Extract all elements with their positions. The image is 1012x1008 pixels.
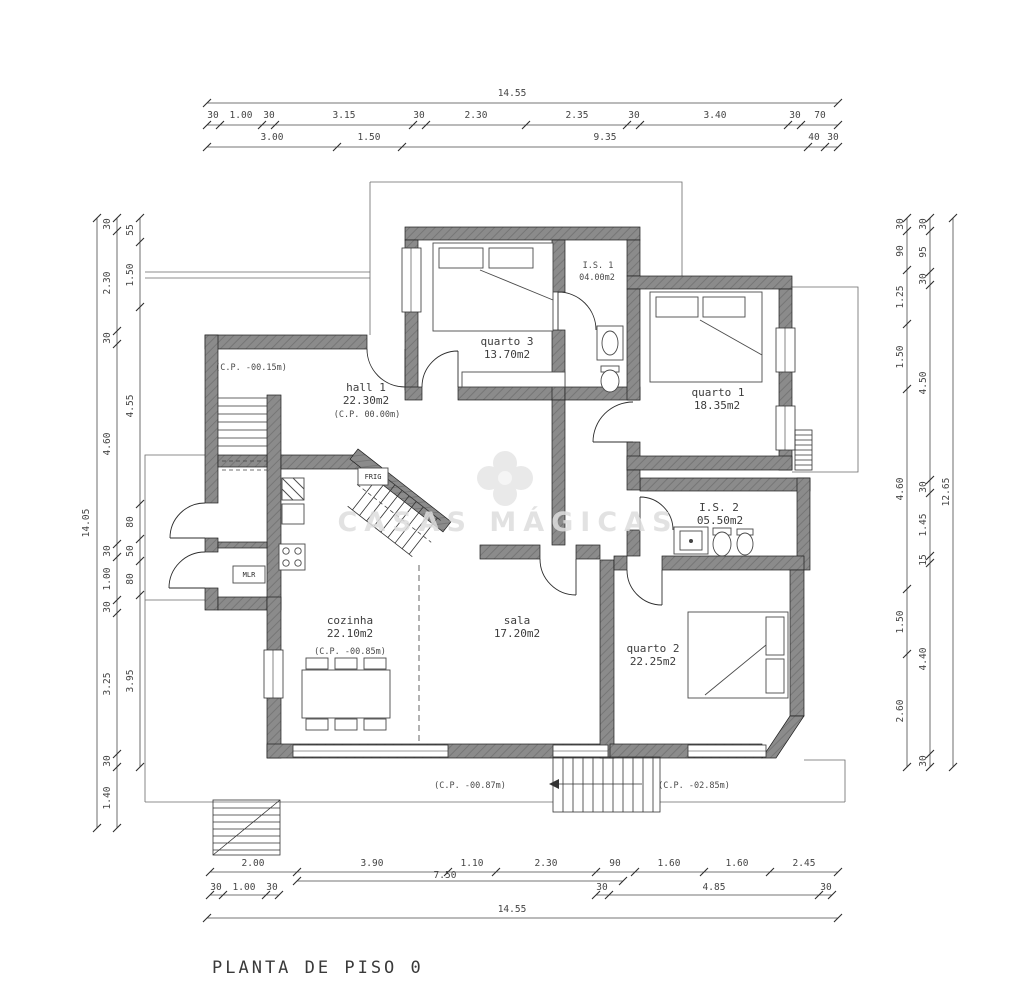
is2-sink xyxy=(674,527,708,554)
dim-label: 30 xyxy=(895,218,906,230)
dim-label: 1.00 xyxy=(102,567,113,590)
dim-label: 50 xyxy=(125,545,136,557)
wall-segment xyxy=(600,560,614,758)
wall-segment xyxy=(627,289,640,400)
wall-segment xyxy=(480,545,540,559)
dim-label: 1.50 xyxy=(895,610,906,633)
dim-label: 40 xyxy=(808,132,820,143)
dim-label: 55 xyxy=(125,224,136,235)
dimension-chain-left: 14.05 30 2.30 30 4.60 30 1.00 30 3.25 30… xyxy=(81,214,144,832)
wall-segment xyxy=(218,597,267,610)
dim-label: 30 xyxy=(102,218,113,230)
is2-bidet xyxy=(737,529,753,555)
bed-quarto-1 xyxy=(650,292,762,382)
dim-label: 2.45 xyxy=(793,858,816,869)
clover-icon xyxy=(477,451,533,506)
wall-segment xyxy=(627,470,640,490)
dim-label: 30 xyxy=(789,110,801,121)
washer-label: MLR xyxy=(243,571,256,579)
wall-segment xyxy=(576,545,600,559)
wall-segment xyxy=(662,556,804,570)
wall-segment xyxy=(205,335,218,503)
room-area-is-1: 04.00m2 xyxy=(579,273,615,283)
dim-label: 30 xyxy=(102,755,113,767)
room-cp-cozinha: (C.P. -00.85m) xyxy=(314,647,386,657)
page-title: PLANTA DE PISO 0 xyxy=(212,958,424,978)
window xyxy=(293,745,448,757)
is1-sink xyxy=(597,326,623,360)
room-area-hall-1: 22.30m2 xyxy=(343,394,389,407)
dim-label: 30 xyxy=(596,882,608,893)
room-label-is-1: I.S. 1 xyxy=(583,261,614,271)
dim-label: 30 xyxy=(918,481,929,493)
window xyxy=(402,248,421,312)
wall-segment xyxy=(405,387,422,400)
dim-label: 30 xyxy=(918,273,929,285)
dim-label: 70 xyxy=(814,110,826,121)
door-is-1 xyxy=(558,292,596,330)
dim-label: 9.35 xyxy=(594,132,617,143)
watermark-text: CASAS MÁGICAS xyxy=(337,506,678,538)
dim-label: 80 xyxy=(125,573,136,585)
door-sala xyxy=(540,559,576,595)
washer-box: MLR xyxy=(233,566,265,583)
dimension-chain-top: 14.55 30 1.00 30 3.15 30 2.30 2.35 30 3.… xyxy=(203,88,842,151)
dim-label: 4.60 xyxy=(895,477,906,500)
floor-plan-drawing: FRIG MLR quarto 3 13.70m2 I.S. 1 04.00m2… xyxy=(0,0,1012,1008)
wall-segment xyxy=(627,276,792,289)
dim-label: 30 xyxy=(413,110,425,121)
dim-label: 30 xyxy=(102,601,113,613)
dim-label: 15 xyxy=(918,554,929,565)
room-label-quarto-2: quarto 2 xyxy=(627,642,680,655)
dim-label: 4.60 xyxy=(102,432,113,455)
dim-label: 12.65 xyxy=(941,478,952,507)
fridge-label: FRIG xyxy=(365,473,382,481)
dim-label: 3.00 xyxy=(261,132,284,143)
dim-label: 30 xyxy=(820,882,832,893)
annotation-ext-stair-cp: (C.P. -02.85m) xyxy=(658,781,730,791)
dim-label: 95 xyxy=(918,246,929,257)
dim-label: 14.55 xyxy=(498,904,527,915)
wall-segment xyxy=(205,538,218,552)
room-area-sala: 17.20m2 xyxy=(494,627,540,640)
sliding-door xyxy=(553,745,608,757)
wall-segment xyxy=(627,240,640,276)
wall-segment xyxy=(205,335,367,349)
dim-label: 30 xyxy=(918,755,929,767)
is2-toilet xyxy=(713,528,731,556)
dim-label: 1.50 xyxy=(358,132,381,143)
fridge-box: FRIG xyxy=(358,468,388,485)
dim-label: 3.15 xyxy=(333,110,356,121)
left-porch-outline xyxy=(145,455,205,802)
dim-label: 1.25 xyxy=(895,286,906,309)
room-label-is-2: I.S. 2 xyxy=(699,501,739,514)
dim-label: 30 xyxy=(263,110,275,121)
wall-segment xyxy=(218,542,267,548)
dim-label: 4.40 xyxy=(918,647,929,670)
dim-label: 4.85 xyxy=(703,882,726,893)
dim-label: 2.30 xyxy=(535,858,558,869)
room-area-cozinha: 22.10m2 xyxy=(327,627,373,640)
dim-label: 90 xyxy=(609,858,621,869)
wall-segment xyxy=(267,395,281,610)
annotation-hall-cp: (C.P. -00.15m) xyxy=(215,363,287,373)
wall-segment xyxy=(205,588,218,610)
room-area-quarto-2: 22.25m2 xyxy=(630,655,676,668)
dim-label: 30 xyxy=(210,882,222,893)
dim-label: 1.60 xyxy=(658,858,681,869)
window xyxy=(264,650,283,698)
window xyxy=(688,745,766,757)
bed-quarto-3 xyxy=(433,243,553,331)
door-service-2 xyxy=(169,552,205,588)
dim-label: 30 xyxy=(628,110,640,121)
dim-label: 2.30 xyxy=(465,110,488,121)
retaining-wall-lines xyxy=(145,272,370,278)
room-cp-hall-1: (C.P. 00.00m) xyxy=(334,410,401,420)
is1-toilet xyxy=(601,366,619,392)
dim-label: 30 xyxy=(918,218,929,230)
door-quarto-1 xyxy=(593,402,633,442)
wall-segment xyxy=(627,456,792,470)
dim-label: 3.25 xyxy=(102,673,113,696)
dining-table xyxy=(302,658,390,730)
dim-label: 1.00 xyxy=(230,110,253,121)
window xyxy=(776,406,795,450)
exterior-steps-east xyxy=(795,430,812,470)
dim-label: 4.50 xyxy=(918,371,929,394)
dim-label: 7.50 xyxy=(434,870,457,881)
dim-label: 1.10 xyxy=(461,858,484,869)
room-area-is-2: 05.50m2 xyxy=(697,514,743,527)
kitchen-counter-appliances xyxy=(279,478,305,570)
wall-segment xyxy=(405,227,640,240)
dim-label: 1.45 xyxy=(918,514,929,537)
room-label-hall-1: hall 1 xyxy=(346,381,386,394)
wall-segment xyxy=(790,570,804,716)
door-quarto-3 xyxy=(422,351,458,387)
dim-label: 30 xyxy=(266,882,278,893)
dim-label: 1.40 xyxy=(102,786,113,809)
dim-label: 1.00 xyxy=(233,882,256,893)
dim-label: 2.30 xyxy=(102,271,113,294)
exterior-stair-west xyxy=(213,800,280,855)
dim-label: 30 xyxy=(102,545,113,557)
wall-segment xyxy=(458,387,565,400)
wall-segment xyxy=(552,330,565,400)
dim-label: 3.40 xyxy=(704,110,727,121)
window-bench xyxy=(462,372,565,387)
wall-segment xyxy=(640,478,810,491)
exterior-stair-south xyxy=(549,757,660,812)
annotation-stair-cp: (C.P. -00.87m) xyxy=(434,781,506,791)
dim-label: 1.50 xyxy=(125,263,136,286)
dim-label: 2.60 xyxy=(895,699,906,722)
dim-label: 30 xyxy=(102,332,113,344)
door-service-1 xyxy=(170,503,205,538)
dim-label: 2.35 xyxy=(566,110,589,121)
dim-label: 80 xyxy=(125,516,136,528)
room-area-quarto-1: 18.35m2 xyxy=(694,399,740,412)
dim-label: 3.90 xyxy=(361,858,384,869)
dim-label: 14.05 xyxy=(81,509,92,538)
dimension-chain-bottom: 2.00 3.90 1.10 2.30 90 1.60 1.60 2.45 7.… xyxy=(203,858,842,922)
wall-segment xyxy=(552,240,565,292)
room-label-quarto-3: quarto 3 xyxy=(481,335,534,348)
dim-label: 30 xyxy=(827,132,839,143)
room-area-quarto-3: 13.70m2 xyxy=(484,348,530,361)
wall-segment xyxy=(614,556,627,570)
room-label-sala: sala xyxy=(504,614,531,627)
door-quarto-2 xyxy=(627,570,662,605)
right-terrace-outline xyxy=(792,287,858,472)
room-label-cozinha: cozinha xyxy=(327,614,373,627)
window xyxy=(776,328,795,372)
bed-quarto-2 xyxy=(688,612,788,698)
wall-segment xyxy=(762,716,804,758)
interior-stair-treads xyxy=(218,398,267,446)
dim-label: 3.95 xyxy=(125,670,136,693)
dim-label: 14.55 xyxy=(498,88,527,99)
dim-label: 1.60 xyxy=(726,858,749,869)
floor-plan-page: FRIG MLR quarto 3 13.70m2 I.S. 1 04.00m2… xyxy=(0,0,1012,1008)
dim-label: 2.00 xyxy=(242,858,265,869)
dim-label: 30 xyxy=(207,110,219,121)
dim-label: 1.50 xyxy=(895,345,906,368)
dim-label: 4.55 xyxy=(125,395,136,418)
dimension-chain-right: 30 90 1.25 1.50 4.60 1.50 2.60 30 95 30 … xyxy=(895,214,957,771)
dim-label: 90 xyxy=(895,245,906,257)
room-label-quarto-1: quarto 1 xyxy=(692,386,745,399)
